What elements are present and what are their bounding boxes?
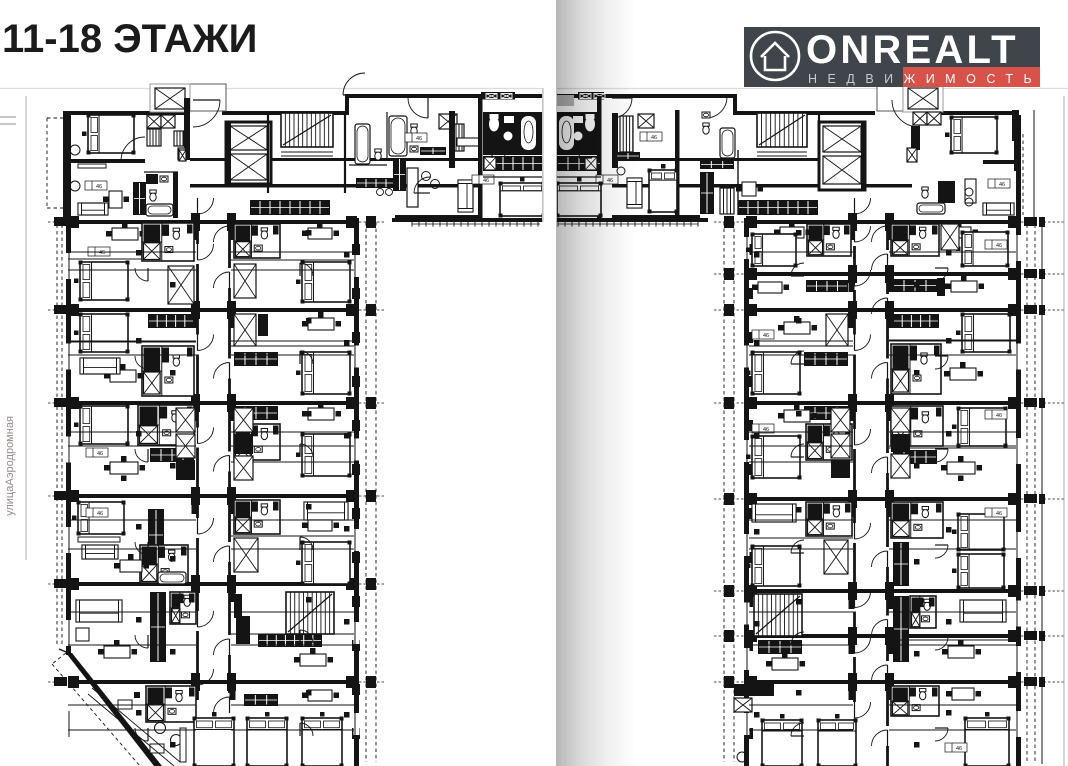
svg-text:11-18 ЭТАЖИ: 11-18 ЭТАЖИ <box>2 17 257 61</box>
svg-text:46: 46 <box>483 178 489 184</box>
svg-text:46: 46 <box>999 182 1005 188</box>
svg-text:46: 46 <box>97 511 103 517</box>
svg-text:46: 46 <box>97 451 103 457</box>
svg-text:46: 46 <box>763 333 769 339</box>
svg-text:46: 46 <box>996 413 1002 419</box>
svg-text:46: 46 <box>99 250 105 256</box>
svg-text:46: 46 <box>996 243 1002 249</box>
svg-text:улицаАэродромная: улицаАэродромная <box>4 416 16 516</box>
svg-text:46: 46 <box>651 135 657 141</box>
svg-text:ONREALT: ONREALT <box>806 28 1019 72</box>
svg-text:46: 46 <box>416 136 422 142</box>
svg-text:46: 46 <box>956 746 962 752</box>
svg-text:46: 46 <box>996 511 1002 517</box>
svg-text:46: 46 <box>96 184 102 190</box>
